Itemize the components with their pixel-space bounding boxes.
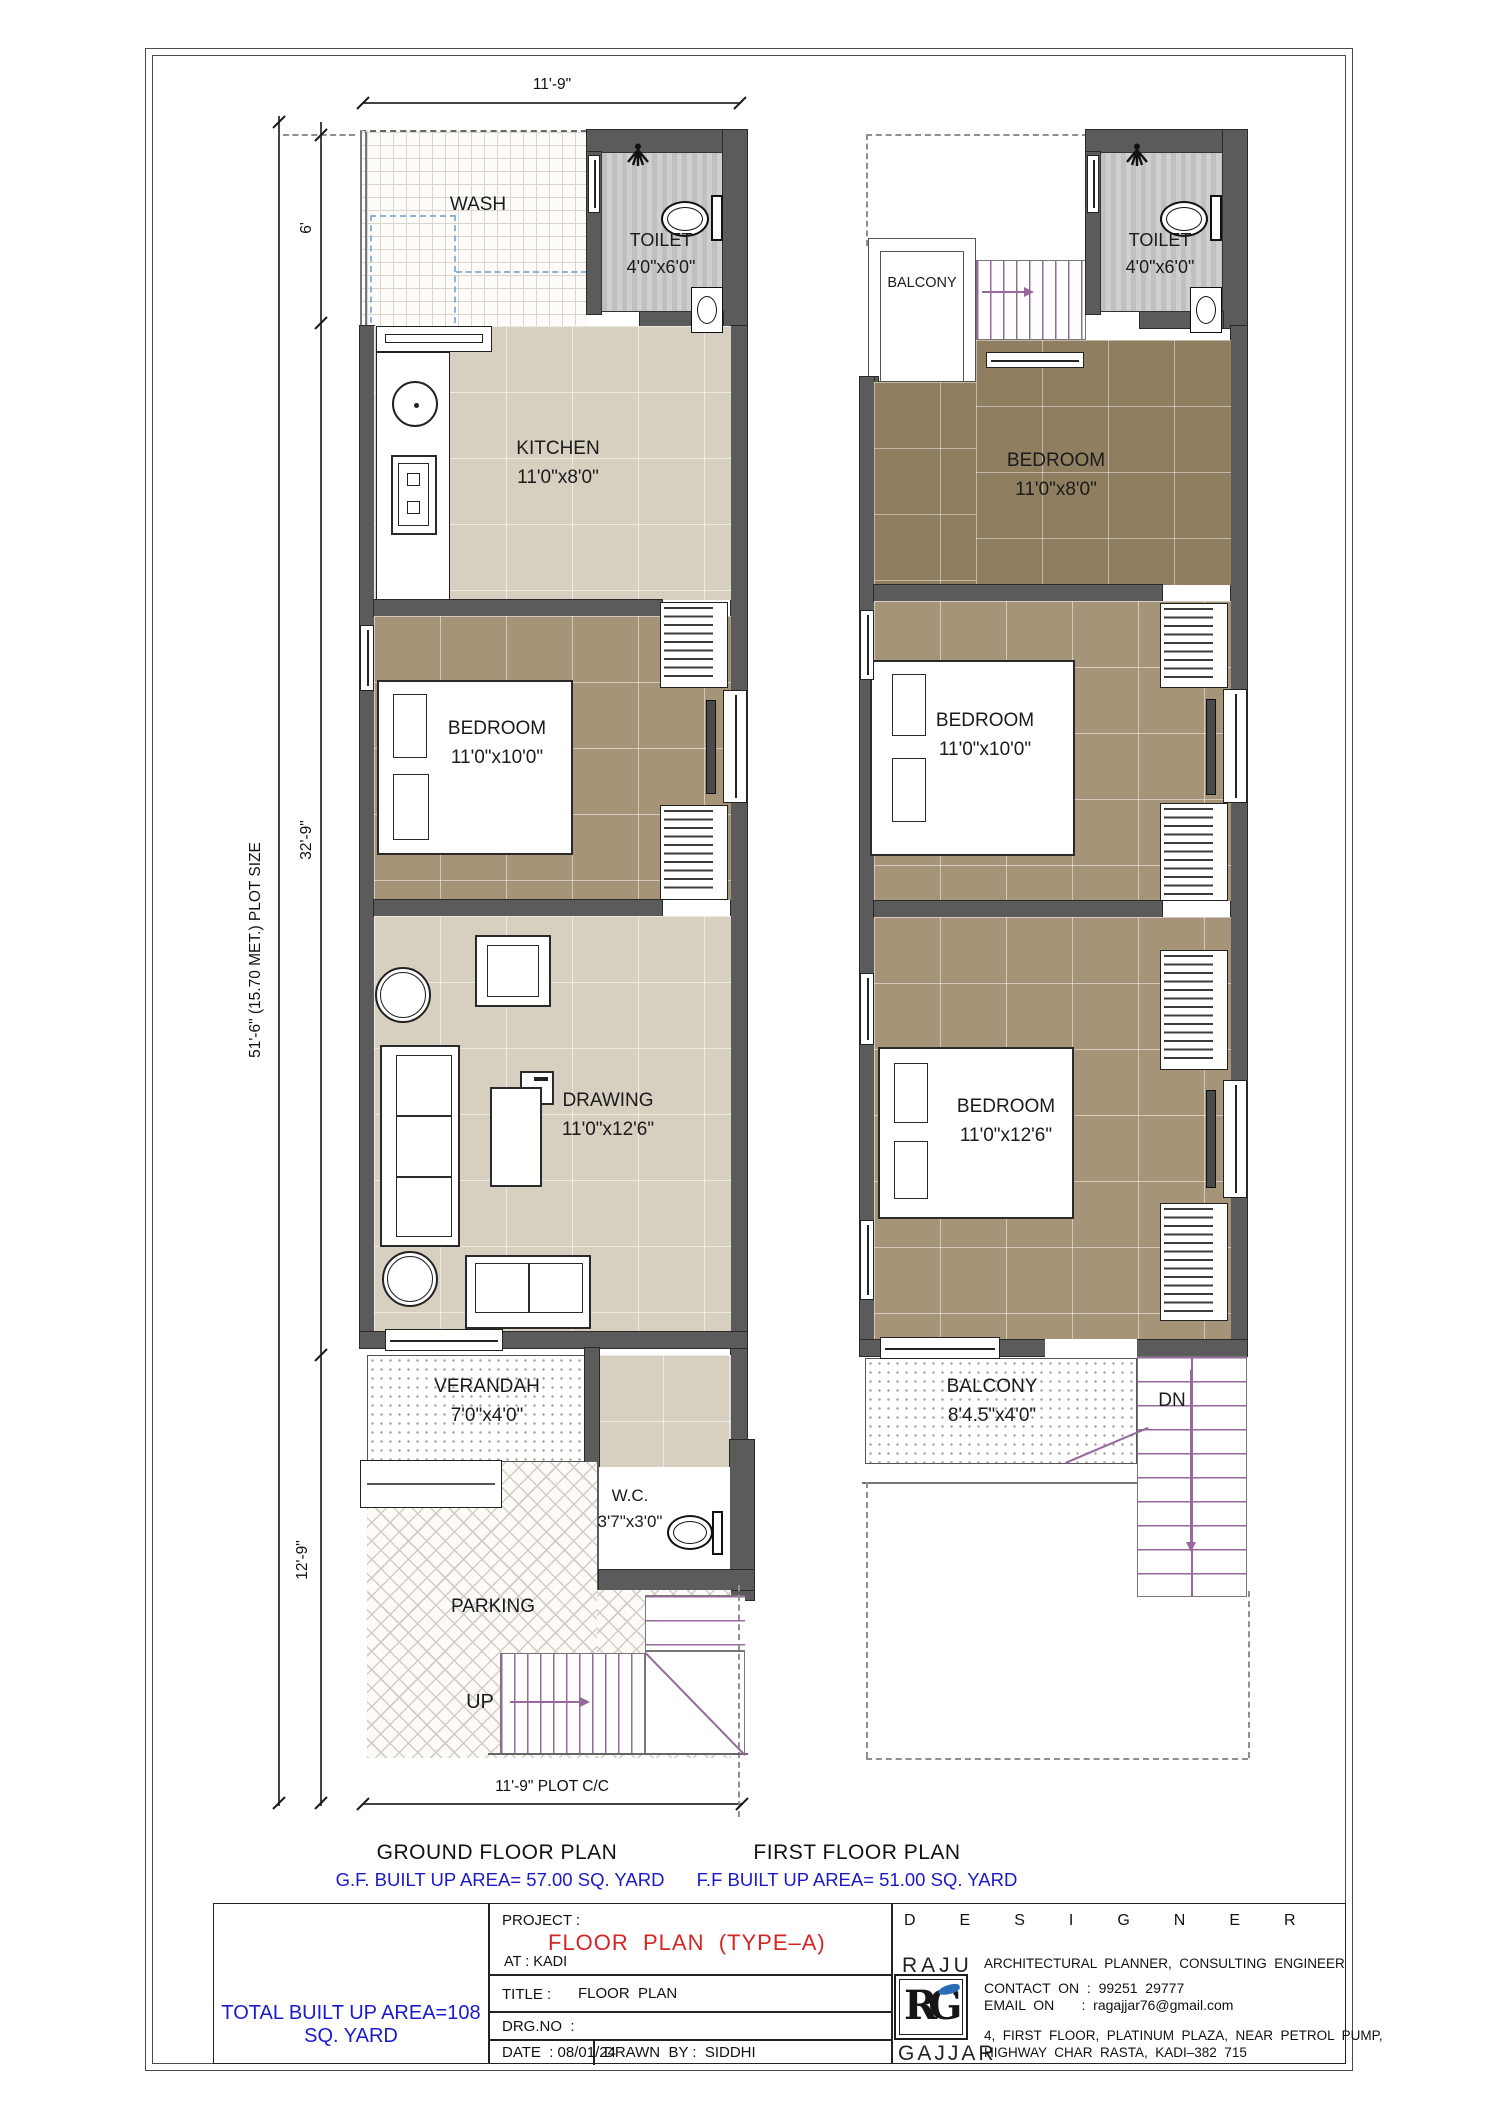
tv-unit-icon — [490, 1087, 542, 1187]
armchair-icon — [475, 935, 551, 1007]
wc-tank-icon — [712, 1511, 723, 1555]
stairs-dn-arrow — [1190, 1370, 1192, 1542]
balcony-label: BALCONY8'4.5"x4'0" — [947, 1373, 1038, 1430]
designer-logo: RG — [894, 1974, 968, 2040]
title-label: TITLE : — [502, 1986, 551, 2003]
project-at: AT : KADI — [504, 1954, 567, 1970]
plot-dashed-line — [866, 134, 868, 246]
window-icon — [385, 1329, 503, 1351]
gf-bedroom-size: 11'0"x10'0" — [451, 747, 543, 768]
wall-segment — [860, 377, 874, 1356]
balcony-size: 8'4.5"x4'0" — [948, 1405, 1036, 1426]
wash-platform-outline — [370, 215, 456, 323]
up-label: UP — [466, 1687, 494, 1717]
kitchen-size: 11'0"x8'0" — [517, 467, 599, 488]
ff-bedroom3-size: 11'0"x12'6" — [960, 1125, 1052, 1146]
dim-main-height: 32'-9" — [298, 820, 316, 859]
window-icon — [723, 690, 747, 803]
kitchen-label: KITCHEN11'0"x8'0" — [516, 435, 599, 492]
window-icon — [860, 1220, 874, 1300]
door-leaf-icon — [1206, 699, 1216, 795]
wall-segment — [723, 130, 747, 328]
dim-parking-height: 12'-9" — [294, 1540, 312, 1579]
ff-plan-area: F.F BUILT UP AREA= 51.00 SQ. YARD — [697, 1869, 1018, 1891]
kitchen-name: KITCHEN — [516, 438, 599, 459]
window-icon — [1223, 1080, 1247, 1198]
wardrobe-icon — [660, 602, 728, 688]
ff-bedroom1-label: BEDROOM11'0"x8'0" — [1007, 447, 1105, 504]
balcony-top-label: BALCONY — [887, 273, 956, 295]
first-floor-plan: BALCONY TOILET4'0"x6'0" BEDROOM11'0"x8'0… — [860, 115, 1260, 1815]
toilet-wc-tank-icon — [1210, 195, 1222, 241]
round-table-icon — [375, 967, 431, 1023]
wardrobe-icon — [1160, 603, 1228, 688]
drawing-size: 11'0"x12'6" — [562, 1119, 654, 1140]
kitchen-platform-sink-slot — [385, 334, 483, 343]
ff-plan-title: FIRST FLOOR PLAN — [753, 1841, 960, 1865]
door-leaf-icon — [1206, 1090, 1216, 1188]
wardrobe-icon — [1160, 1203, 1228, 1321]
wall-segment — [1086, 130, 1245, 152]
wash-name: WASH — [450, 194, 506, 215]
stairs-dn-arrowhead — [1186, 1542, 1196, 1552]
wall-segment — [374, 600, 662, 616]
plot-dashed-line — [1248, 1591, 1250, 1758]
wall-segment — [874, 901, 1162, 917]
designer-contact: CONTACT ON : 99251 29777 — [984, 1980, 1184, 1996]
balcony-edge-line — [862, 1482, 1138, 1484]
project-label: PROJECT : — [502, 1912, 580, 1929]
ff-toilet-size: 4'0"x6'0" — [1126, 257, 1195, 277]
verandah-step — [360, 1460, 502, 1508]
stairs-arrow — [982, 291, 1026, 293]
plot-dashed-line — [866, 134, 1088, 136]
stove-burner — [407, 473, 420, 486]
wall-segment — [1231, 326, 1247, 1356]
plot-dashed-line — [866, 1482, 868, 1758]
toilet-label: TOILET4'0"x6'0" — [627, 227, 696, 281]
dim-top-width: 11'-9" — [533, 76, 571, 94]
ff-toilet-label: TOILET4'0"x6'0" — [1126, 227, 1195, 281]
toilet-sink-icon — [1190, 287, 1222, 333]
plot-dashed-line — [738, 1585, 740, 1817]
total-area-text: TOTAL BUILT UP AREA=108 SQ. YARD — [214, 2002, 488, 2032]
wc-label: W.C.3'7"x3'0" — [598, 1483, 663, 1534]
designer-address-2: HIGHWAY CHAR RASTA, KADI–382 715 — [984, 2045, 1247, 2060]
dn-label: DN — [1158, 1387, 1185, 1416]
designer-last-name: GAJJAR — [898, 2042, 997, 2066]
dn-text: DN — [1158, 1390, 1185, 1411]
wc-passage-floor — [597, 1355, 731, 1467]
ff-bedroom3-name: BEDROOM — [957, 1096, 1055, 1117]
wall-segment — [1223, 130, 1247, 328]
sofa-two-seat-icon — [465, 1255, 591, 1329]
toilet-wc-tank-icon — [711, 195, 723, 241]
gf-plan-area: G.F. BUILT UP AREA= 57.00 SQ. YARD — [336, 1869, 665, 1891]
kitchen-sink-icon — [392, 381, 438, 427]
ff-bedroom1-size: 11'0"x8'0" — [1015, 479, 1097, 500]
wash-plumbing-line — [456, 271, 587, 273]
parking-label: PARKING — [451, 1593, 535, 1622]
stairs-down — [1137, 1356, 1247, 1597]
wardrobe-icon — [1160, 950, 1228, 1070]
dim-line-segments — [320, 122, 322, 1806]
floor-plan-sheet: 11'-9" 51'-6" (15.70 MET.) PLOT SIZE 6' … — [0, 0, 1500, 2121]
designer-address-1: 4, FIRST FLOOR, PLATINUM PLAZA, NEAR PET… — [984, 2028, 1383, 2043]
wall-segment — [874, 585, 1162, 601]
window-icon — [860, 973, 874, 1045]
toilet-name: TOILET — [630, 230, 693, 250]
ff-toilet-name: TOILET — [1129, 230, 1192, 250]
stairs-arrowhead — [1024, 287, 1034, 297]
project-name: FLOOR PLAN (TYPE–A) — [548, 1930, 826, 1956]
balcony-top-name: BALCONY — [887, 275, 956, 291]
shower-icon — [618, 143, 658, 171]
gf-bedroom-label: BEDROOM11'0"x10'0" — [448, 715, 546, 772]
date-label: DATE : 08/01/24 — [502, 2044, 616, 2061]
title-block: TOTAL BUILT UP AREA=108 SQ. YARD PROJECT… — [213, 1903, 1346, 2064]
dim-plot-size: 51'-6" (15.70 MET.) PLOT SIZE — [247, 842, 265, 1058]
dim-line-top — [363, 102, 740, 104]
verandah-size: 7'0"x4'0" — [451, 1405, 524, 1426]
window-icon — [880, 1337, 1000, 1359]
gf-bedroom-name: BEDROOM — [448, 718, 546, 739]
ff-bedroom1-floor — [874, 382, 976, 585]
wardrobe-icon — [660, 805, 728, 900]
pillow-icon — [892, 674, 926, 736]
verandah-name: VERANDAH — [434, 1376, 540, 1397]
ff-bedroom3-label: BEDROOM11'0"x12'6" — [957, 1093, 1055, 1150]
ff-bedroom2-label: BEDROOM11'0"x10'0" — [936, 707, 1034, 764]
gf-plan-title: GROUND FLOOR PLAN — [377, 1841, 618, 1865]
stairs-up-arrowhead — [580, 1697, 590, 1707]
sofa-three-seat-icon — [380, 1045, 460, 1247]
window-icon — [1087, 155, 1099, 213]
wash-label: WASH — [450, 191, 506, 220]
pillow-icon — [892, 758, 926, 822]
wall-segment — [360, 326, 374, 1348]
designer-heading: DESIGNER — [904, 1912, 1340, 1930]
pillow-icon — [894, 1141, 928, 1199]
wc-name: W.C. — [612, 1486, 649, 1505]
title-block-divider — [488, 2011, 892, 2013]
stairs-up — [500, 1653, 645, 1755]
window-icon — [860, 610, 874, 680]
stove-burner — [407, 501, 420, 514]
toilet-sink-icon — [691, 287, 723, 333]
kitchen-platform — [376, 326, 492, 352]
wall-segment — [599, 1570, 754, 1590]
up-text: UP — [466, 1691, 494, 1713]
wc-bowl-icon — [667, 1515, 713, 1550]
drawing-label: DRAWING11'0"x12'6" — [562, 1087, 654, 1144]
balcony-top — [868, 238, 976, 382]
title-block-divider — [488, 2039, 892, 2041]
kitchen-stove-icon — [391, 455, 437, 535]
dim-wash-height: 6' — [298, 222, 316, 234]
wall-segment — [731, 326, 747, 1440]
parking-name: PARKING — [451, 1596, 535, 1617]
door-opening — [1045, 1339, 1137, 1357]
pillow-icon — [894, 1063, 928, 1123]
ff-bedroom2-size: 11'0"x10'0" — [939, 739, 1031, 760]
drg-no-label: DRG.NO : — [502, 2018, 575, 2035]
stair-sill — [986, 352, 1084, 368]
pillow-icon — [393, 774, 429, 840]
round-table-icon — [382, 1251, 438, 1307]
toilet-size: 4'0"x6'0" — [627, 257, 696, 277]
window-icon — [1223, 689, 1247, 803]
ground-floor-plan: WASH TOILET4'0"x6'0" KITCHEN11'0"x8'0" — [360, 115, 760, 1815]
wall-segment — [374, 900, 662, 916]
title-block-divider — [488, 1974, 892, 1976]
stairs-up-arrow — [510, 1701, 580, 1703]
wall-segment — [587, 130, 745, 152]
parking-boundary-line — [488, 1753, 748, 1755]
ff-bedroom2-name: BEDROOM — [936, 710, 1034, 731]
plot-dashed-line — [866, 1758, 1248, 1760]
wc-size: 3'7"x3'0" — [598, 1512, 663, 1531]
stairs-landing-treads — [645, 1595, 745, 1651]
window-icon — [360, 625, 374, 691]
title-value: FLOOR PLAN — [578, 1985, 677, 2002]
pillow-icon — [393, 694, 427, 758]
window-icon — [588, 155, 600, 213]
balcony-name: BALCONY — [947, 1376, 1038, 1397]
ff-bedroom1-name: BEDROOM — [1007, 450, 1105, 471]
shower-icon — [1117, 143, 1157, 171]
wardrobe-icon — [1160, 803, 1228, 901]
stairs-top — [976, 260, 1086, 340]
designer-email: EMAIL ON : ragajjar76@gmail.com — [984, 1997, 1233, 2013]
door-leaf-icon — [706, 700, 716, 794]
drawing-name: DRAWING — [562, 1090, 653, 1111]
drawn-by-label: DRAWN BY : SIDDHI — [604, 2044, 756, 2061]
dim-plot-cc: 11'-9" PLOT C/C — [495, 1778, 609, 1796]
verandah-label: VERANDAH7'0"x4'0" — [434, 1373, 540, 1430]
designer-role: ARCHITECTURAL PLANNER, CONSULTING ENGINE… — [984, 1956, 1345, 1971]
dim-line-plot — [278, 116, 280, 1806]
